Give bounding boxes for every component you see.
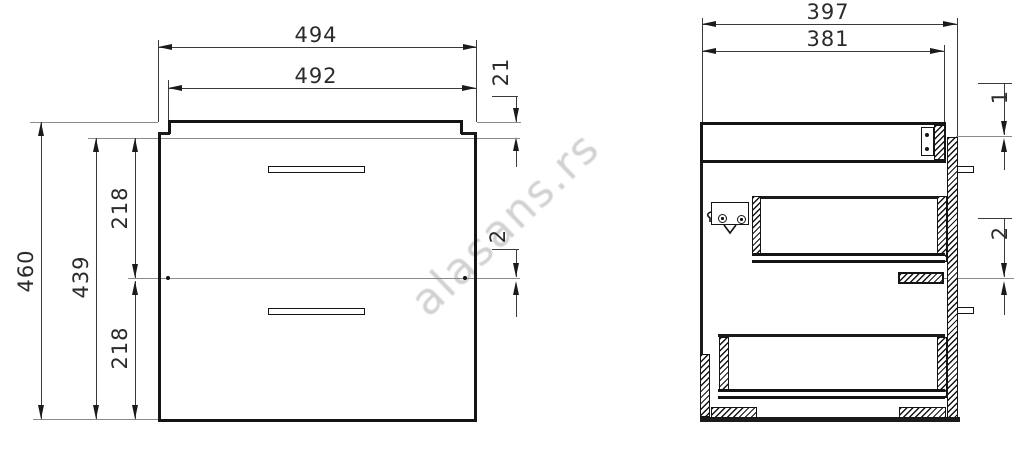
extension-line xyxy=(956,136,1012,137)
carcass-outline xyxy=(158,135,477,422)
arrowhead xyxy=(93,138,99,152)
junction-dot xyxy=(166,276,170,280)
arrowhead xyxy=(168,85,182,91)
top-drawer-top-edge xyxy=(752,196,945,199)
arrowhead xyxy=(1001,121,1007,135)
dimension-line-492 xyxy=(168,88,476,89)
front-rail-section xyxy=(934,125,945,160)
arrowhead xyxy=(513,281,519,295)
dimension-line-439 xyxy=(96,138,97,419)
extension-line xyxy=(702,18,703,122)
dimension-tail xyxy=(1004,152,1005,170)
side-view: 397 381 1 2 xyxy=(540,0,1024,453)
extension-line xyxy=(477,122,521,123)
bottom-panel-section-left xyxy=(711,407,757,418)
dimension-line-381 xyxy=(702,51,944,52)
arrowhead xyxy=(463,44,477,50)
dim-label-drawer-bottom: 218 xyxy=(109,316,131,380)
dim-label-top-thickness: 21 xyxy=(490,40,512,104)
extension-line xyxy=(33,419,158,420)
arrowhead xyxy=(38,122,44,136)
dimension-tail xyxy=(516,151,517,167)
handle-section-top xyxy=(957,166,974,173)
dimension-line-494 xyxy=(158,47,477,48)
dim-label-top-gap: 1 xyxy=(989,65,1011,129)
arrowhead xyxy=(462,85,476,91)
arrowhead xyxy=(513,137,519,151)
arrowhead xyxy=(513,263,519,277)
extension-line xyxy=(476,40,477,122)
middle-rail-section xyxy=(898,272,944,284)
top-drawer-bottom-panel xyxy=(752,253,945,263)
dim-label-depth-overall: 397 xyxy=(796,1,860,23)
extension-line xyxy=(158,40,159,122)
arrowhead xyxy=(513,108,519,122)
handle-section-bottom xyxy=(957,307,974,314)
arrowhead xyxy=(930,48,944,54)
arrowhead xyxy=(132,138,138,152)
mounting-plate xyxy=(921,127,934,156)
dim-label-middle-gap: 2 xyxy=(989,201,1011,265)
arrowhead xyxy=(38,405,44,419)
top-band xyxy=(700,122,946,163)
arrowhead xyxy=(943,21,957,27)
extension-line xyxy=(944,45,945,125)
drawer-handle-bottom xyxy=(268,308,365,315)
arrowhead xyxy=(1001,138,1007,152)
arrowhead xyxy=(1001,263,1007,277)
dim-label-width-overall: 494 xyxy=(284,24,348,46)
dimension-line-218-bottom xyxy=(135,281,136,419)
extension-line xyxy=(957,18,958,137)
junction-dot xyxy=(463,276,467,280)
bottom-drawer-top-edge xyxy=(718,334,945,337)
dimension-cap xyxy=(978,218,1012,219)
slide-linkage xyxy=(698,198,758,243)
arrowhead xyxy=(1001,281,1007,295)
drawer-handle-top xyxy=(268,166,365,173)
arrowhead xyxy=(132,264,138,278)
dimension-cap xyxy=(492,96,518,97)
dimension-cap xyxy=(978,83,1012,84)
top-panel xyxy=(168,120,463,134)
arrowhead xyxy=(702,21,716,27)
arrowhead xyxy=(132,405,138,419)
dim-label-depth-carcass: 381 xyxy=(796,28,860,50)
dimension-line-460 xyxy=(41,122,42,419)
dim-label-height-front: 439 xyxy=(70,245,92,309)
drawer-front-section xyxy=(947,137,958,421)
technical-drawing-canvas: alasans.rs 494 492 21 2 xyxy=(0,0,1024,453)
front-view: 494 492 21 2 460 439 xyxy=(0,0,540,453)
dimension-cap xyxy=(492,249,519,250)
screw-dot xyxy=(925,133,929,137)
dim-label-height-overall: 460 xyxy=(15,239,37,303)
dimension-line-397 xyxy=(702,24,957,25)
dim-label-front-gap: 2 xyxy=(487,204,509,268)
arrowhead xyxy=(158,44,172,50)
dim-label-width-carcass: 492 xyxy=(284,65,348,87)
dimension-tail xyxy=(516,295,517,317)
arrowhead xyxy=(93,405,99,419)
bottom-drawer-bottom-panel xyxy=(718,389,945,399)
dimension-tail xyxy=(1004,295,1005,315)
screw-dot xyxy=(925,147,929,151)
extension-line xyxy=(30,122,158,123)
carcass-top-step-right xyxy=(461,132,477,135)
dim-label-drawer-top: 218 xyxy=(109,176,131,240)
arrowhead xyxy=(132,281,138,295)
arrowhead xyxy=(702,48,716,54)
dimension-line-218-top xyxy=(135,138,136,278)
bottom-panel-section-right xyxy=(899,407,946,418)
drawer-front-foot xyxy=(947,417,960,422)
back-panel-bottom-section xyxy=(700,354,710,417)
